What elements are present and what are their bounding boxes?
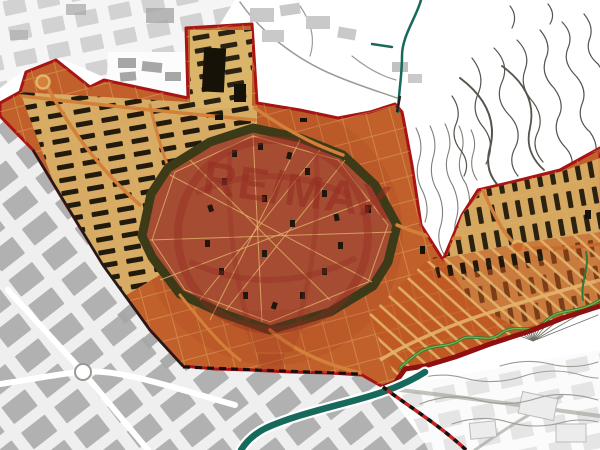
tower-block-north <box>190 30 252 108</box>
urban-plan-map: RE/MAX <box>0 0 600 450</box>
city-roundabout <box>75 364 91 380</box>
balloon-basket <box>258 354 284 370</box>
map-canvas: RE/MAX <box>0 0 600 450</box>
district-roundabout-west <box>37 76 50 89</box>
